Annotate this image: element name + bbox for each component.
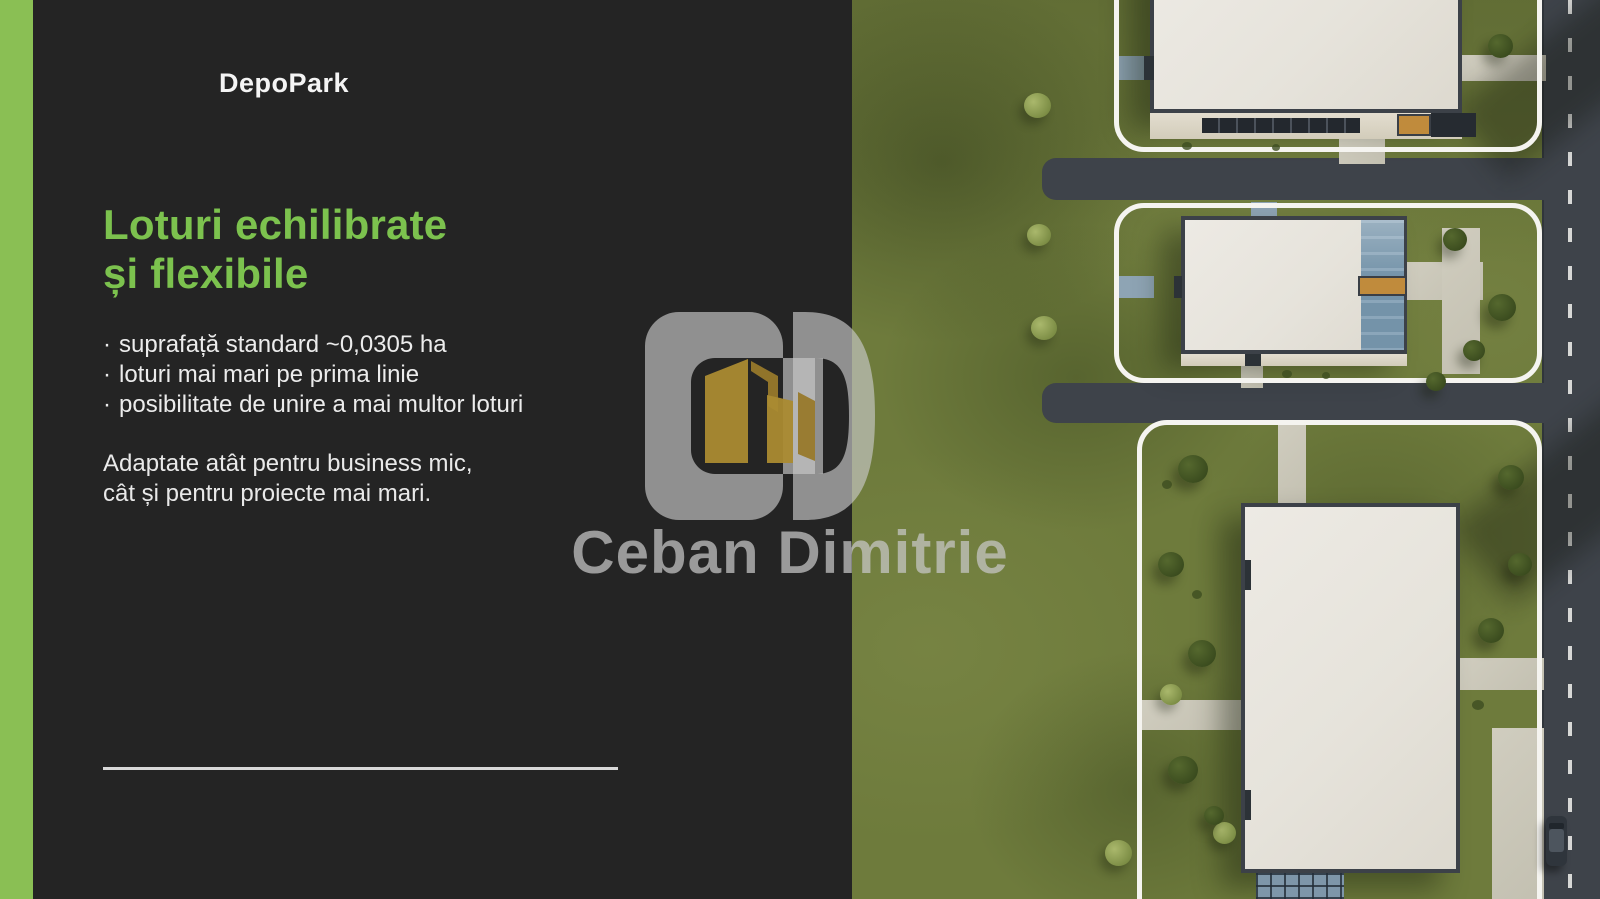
divider-line: [103, 767, 618, 770]
tree: [1027, 224, 1051, 246]
tree: [1031, 316, 1057, 340]
car-roof: [1549, 829, 1564, 852]
tree: [1443, 228, 1467, 251]
tree: [1213, 822, 1236, 844]
bullet-dot: ·: [103, 360, 119, 390]
slide-page: DepoPark Loturi echilibrate și flexibile…: [0, 0, 1600, 899]
shrub: [1322, 372, 1330, 379]
tree: [1488, 34, 1513, 58]
bullet-list: ·suprafață standard ~0,0305 ha ·loturi m…: [103, 330, 523, 420]
tree: [1105, 840, 1132, 866]
shrub: [1182, 142, 1192, 150]
tree: [1024, 93, 1051, 118]
bullet-dot: ·: [103, 330, 119, 360]
tree: [1463, 340, 1485, 361]
shrub: [1282, 370, 1292, 378]
page-title: Loturi echilibrate și flexibile: [103, 200, 447, 298]
tree: [1488, 294, 1516, 321]
shrub: [1472, 700, 1484, 710]
tree: [1478, 618, 1504, 643]
bullet-dot: ·: [103, 390, 119, 420]
tree: [1160, 684, 1182, 705]
bullet-text: loturi mai mari pe prima linie: [119, 361, 419, 388]
paragraph: Adaptate atât pentru business mic, cât ș…: [103, 449, 473, 509]
shrub: [1272, 144, 1280, 151]
car: [1546, 816, 1567, 866]
tree: [1168, 756, 1198, 784]
aerial-render: [852, 0, 1600, 899]
tree: [1178, 455, 1208, 483]
left-panel: DepoPark Loturi echilibrate și flexibile…: [33, 0, 852, 899]
accent-stripe: [0, 0, 33, 899]
tree: [1158, 552, 1184, 577]
lot-outline-1: [1114, 0, 1542, 152]
tree: [1498, 465, 1524, 490]
list-item: ·posibilitate de unire a mai multor lotu…: [103, 390, 523, 420]
brand-logo: DepoPark: [219, 68, 349, 99]
bullet-text: posibilitate de unire a mai multor lotur…: [119, 391, 523, 418]
shrub: [1192, 590, 1202, 599]
shrub: [1162, 480, 1172, 489]
tree: [1508, 553, 1532, 576]
bullet-text: suprafață standard ~0,0305 ha: [119, 331, 447, 358]
tree: [1204, 806, 1224, 825]
list-item: ·loturi mai mari pe prima linie: [103, 360, 523, 390]
tree: [1426, 372, 1446, 391]
tree: [1188, 640, 1216, 667]
road-horizontal: [1042, 383, 1600, 423]
list-item: ·suprafață standard ~0,0305 ha: [103, 330, 523, 360]
